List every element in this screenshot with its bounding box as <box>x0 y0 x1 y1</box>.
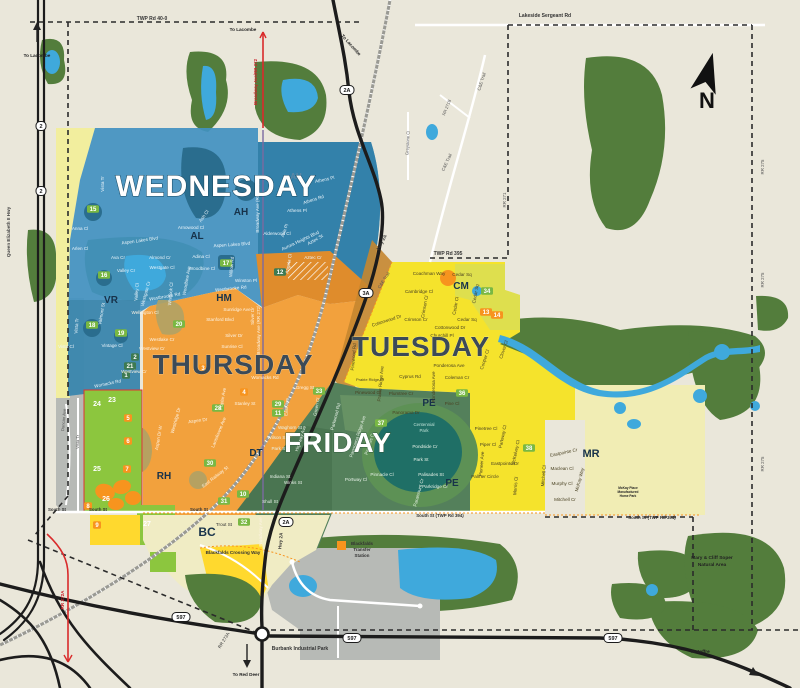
map-label: Cyprus Rd <box>399 374 421 379</box>
park-badge-number: 36 <box>459 391 466 397</box>
map-label: Vista Tr <box>75 434 81 449</box>
map-label: Transfer <box>353 547 371 552</box>
map-label: Westgate Cl <box>150 265 175 270</box>
map-label: Arlen Cl <box>72 246 88 251</box>
map-label: Blackfalds <box>351 541 374 546</box>
compass-north-label: N <box>699 88 715 113</box>
park-badge-number: 12 <box>277 270 284 276</box>
highway-shield-number: 597 <box>347 636 356 642</box>
map-label: Plumtree Cr <box>389 391 414 396</box>
map-label: Vintage Cl <box>101 343 122 348</box>
highway-shield-number: 2A <box>282 520 289 526</box>
map-label: TWP Rd 395 <box>434 251 463 257</box>
highway-shield-3A: 3A <box>359 289 373 298</box>
park-badge-29: 29 <box>272 400 284 408</box>
area-code: VR <box>104 295 119 306</box>
map-label: Centennial <box>414 422 435 427</box>
map-label: Winks St <box>284 480 303 485</box>
park-badge-6: 6 <box>124 437 132 445</box>
map-label: Pinetree Cl <box>475 426 498 431</box>
zone-map: N 12211215161718192028291130313233343637… <box>0 0 800 688</box>
park-badge-34: 34 <box>481 287 493 295</box>
map-label: Pinewood Cl <box>355 390 381 395</box>
park-badge-4: 4 <box>240 388 248 396</box>
area-code: DT <box>249 448 262 459</box>
map-label: Silver Dr <box>250 307 255 325</box>
zone-title-thursday: THURSDAY <box>153 349 314 380</box>
highway-shield-2: 2 <box>36 187 46 196</box>
map-label: Palisades St <box>418 472 444 477</box>
map-label: To Lacombe <box>230 27 257 32</box>
map-canvas: N 12211215161718192028291130313233343637… <box>0 0 800 688</box>
map-label: Burbank Industrial Park <box>272 646 329 652</box>
map-label: To Lacombe <box>24 53 51 58</box>
park-badge-number: 29 <box>275 402 282 408</box>
area-code: BC <box>198 525 216 539</box>
park-badge-32: 32 <box>238 518 250 526</box>
park-badge-number: 20 <box>176 322 183 328</box>
park-badge-number: 31 <box>221 499 228 505</box>
park-badge-14: 14 <box>491 311 503 319</box>
highway-shield-597: 597 <box>172 613 190 622</box>
map-label: Adina Cl <box>192 254 209 259</box>
map-label: Portway Cl <box>345 477 367 482</box>
highway-shield-number: 597 <box>608 636 617 642</box>
park-badge-9: 9 <box>93 521 101 529</box>
map-label: TWP Rd 40-0 <box>137 16 168 22</box>
map-label: To Red Deer <box>233 672 260 677</box>
park-badge-number: 33 <box>316 389 323 395</box>
area-code: CM <box>453 281 469 292</box>
map-label: South St (TWP Rd 394) <box>416 513 464 518</box>
highway-shield-2A: 2A <box>279 518 293 527</box>
transfer-station-icon <box>337 541 346 550</box>
hatched-area-12 <box>288 262 328 280</box>
park-badge-13: 13 <box>480 308 492 316</box>
map-label: Lakeside Sergeant Rd <box>519 13 571 19</box>
map-label: Ponderosa Ave <box>433 363 465 368</box>
map-label: Broadway Ave (RR 272) <box>256 305 261 355</box>
map-label: Palmer Circle <box>471 474 499 479</box>
park-badge-number: 38 <box>526 446 533 452</box>
map-label: Cedar Sq <box>457 317 477 322</box>
park-badge-33: 33 <box>313 387 325 395</box>
park-badge-38: 38 <box>523 444 535 452</box>
map-label: Cambridge Cl <box>405 289 433 294</box>
map-label: RR 275 <box>760 272 765 287</box>
zone-title-wednesday: WEDNESDAY <box>115 170 316 203</box>
map-label: Panorama Dr <box>392 410 420 415</box>
map-label: 23 <box>108 397 116 404</box>
map-label: Ponderosa Ave <box>431 371 436 403</box>
map-label: Indiana St <box>270 474 291 479</box>
park-badge-number: 15 <box>90 207 97 213</box>
highway-shield-2A: 2A <box>340 86 354 95</box>
park-badge-10: 10 <box>237 490 249 498</box>
map-label: Coleman Cr <box>445 375 470 380</box>
map-label: Aztec Cr <box>304 255 322 260</box>
map-label: South St <box>48 507 67 512</box>
map-label: Stanley St <box>235 401 257 406</box>
map-label: Athens Pl <box>287 208 307 213</box>
map-label: Parkridge Cr <box>422 484 448 489</box>
highway-shield-2: 2 <box>36 122 46 131</box>
map-label: Home Park <box>620 494 637 498</box>
park-badge-number: 18 <box>89 323 96 329</box>
map-label: Pine Cl <box>445 401 460 406</box>
map-label: Pinnacle Cl <box>370 472 393 477</box>
map-label: Sunridge Ave <box>223 307 251 312</box>
map-label: Murphy Cl <box>552 481 573 486</box>
park-badge-2: 2 <box>131 353 139 361</box>
map-label: Westview Cr <box>121 369 147 374</box>
map-label: 26 <box>102 496 110 503</box>
map-label: Woodbine Cl <box>189 266 215 271</box>
zone-title-friday: FRIDAY <box>284 427 392 458</box>
map-label: Prairie Ridge Cl <box>356 377 384 382</box>
map-label: Anna Cl <box>72 226 88 231</box>
map-label: Natural Area <box>698 562 727 568</box>
map-label: Valley Cr <box>117 268 136 273</box>
map-label: RR 275 <box>760 456 765 471</box>
highway-shield-number: 2 <box>39 189 42 195</box>
map-label: Vista Tr <box>100 176 105 192</box>
map-label: Coachman Way <box>413 271 446 276</box>
park-badge-5: 5 <box>124 414 132 422</box>
park-badge-37: 37 <box>375 419 387 427</box>
park-badge-18: 18 <box>86 321 98 329</box>
park-badge-15: 15 <box>87 205 99 213</box>
map-label: Station <box>355 553 370 558</box>
park-badge-number: 11 <box>275 411 282 417</box>
map-label: Crimson Cr <box>404 317 428 322</box>
park-badge-number: 16 <box>101 273 108 279</box>
road-endpoint <box>418 604 423 609</box>
bc-yellow-block-1 <box>90 515 140 545</box>
map-label: Cottonwood Dr <box>435 325 466 330</box>
map-label: Mitchell Cr <box>554 497 576 502</box>
map-label: Stanford Blvd <box>206 317 234 322</box>
map-label: Cedar Sq <box>452 272 472 277</box>
map-label: Park <box>419 428 429 433</box>
park-badge-20: 20 <box>173 320 185 328</box>
map-label: Eastpointe Dr <box>491 461 519 466</box>
highway-shield-number: 3A <box>362 291 369 297</box>
roundabout <box>256 628 269 641</box>
area-code: AL <box>190 231 203 242</box>
map-label: Almond Cr <box>149 255 171 260</box>
map-label: Vista Cl <box>58 344 74 349</box>
map-label: Ava Cr <box>111 255 125 260</box>
map-label: Piper Cl <box>480 442 496 447</box>
park-badge-number: 34 <box>484 289 491 295</box>
area-code: AH <box>234 207 248 218</box>
map-label: Blackfalds Crossing Way <box>206 550 261 555</box>
map-label: Broadway Ave <box>258 517 263 547</box>
map-label: 24 <box>93 401 101 408</box>
park-badge-30: 30 <box>204 459 216 467</box>
map-label: RR 275 <box>760 159 765 174</box>
area-code: HM <box>216 293 232 304</box>
map-label: Winston Pl <box>235 278 257 283</box>
zone-title-tuesday: TUESDAY <box>352 331 490 362</box>
park-badge-number: 13 <box>483 310 490 316</box>
park-badge-19: 19 <box>115 329 127 337</box>
map-label: To Joffre <box>690 649 710 654</box>
map-label: RR 271 <box>502 192 507 207</box>
map-label: Pondside Cr <box>412 444 438 449</box>
park-badge-31: 31 <box>218 497 230 505</box>
map-label: Arnowood Cl <box>178 225 204 230</box>
park-badge-16: 16 <box>98 271 110 279</box>
area-code: RH <box>157 471 171 482</box>
highway-shield-597: 597 <box>343 634 361 643</box>
map-label: Gregg St <box>296 385 315 390</box>
map-label: Park St <box>413 457 429 462</box>
park-badge-36: 36 <box>456 389 468 397</box>
map-label: Wellington Cl <box>132 310 159 315</box>
map-label: Queen Elizabeth II Hwy <box>6 206 11 257</box>
map-label: South St (TWP Rd 394) <box>628 515 676 520</box>
map-label: Westlake Cr <box>150 337 175 342</box>
highway-shield-number: 2 <box>39 124 42 130</box>
map-label: Mary & Cliff Soper <box>691 555 733 561</box>
map-label: RR 272A <box>60 590 65 610</box>
highway-shield-number: 597 <box>176 615 185 621</box>
map-label: Shull St <box>262 499 279 504</box>
map-label: South St <box>190 507 209 512</box>
highway-shield-number: 2A <box>343 88 350 94</box>
road-endpoint <box>290 560 295 565</box>
park-badge-11: 11 <box>272 409 284 417</box>
park-badge-number: 10 <box>240 492 247 498</box>
map-label: Broadway Ave/RR 272 <box>253 58 258 105</box>
park-badge-number: 32 <box>241 520 248 526</box>
park-badge-number: 14 <box>494 313 501 319</box>
map-label: 27 <box>143 521 151 528</box>
map-label: 25 <box>93 466 101 473</box>
park-badge-number: 30 <box>207 461 214 467</box>
highway-shield-597: 597 <box>604 634 622 643</box>
map-label: Trout St <box>216 522 233 527</box>
park-badge-7: 7 <box>123 465 131 473</box>
park-badge-number: 19 <box>118 331 125 337</box>
map-label: Silver Dr <box>225 333 243 338</box>
map-label: South St <box>89 507 108 512</box>
map-label: Maclean Cl <box>551 466 574 471</box>
area-code: MR <box>582 448 599 460</box>
